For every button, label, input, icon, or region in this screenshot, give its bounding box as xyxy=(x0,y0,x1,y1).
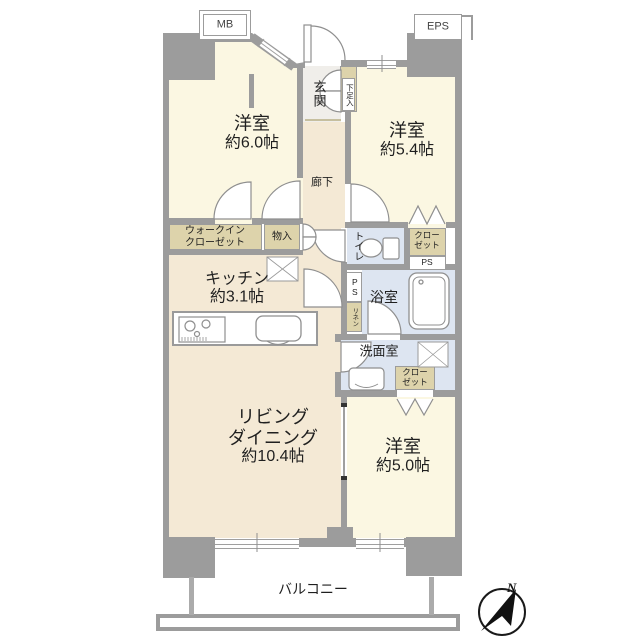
storage-closet-label: 物入 xyxy=(272,231,292,243)
floor-plan: N MB EPS 玄関 下足入 洋室 約6.0帖 洋室 約5.4帖 廊下 ウォー… xyxy=(0,0,640,640)
wall xyxy=(297,122,303,178)
bedroom1-name: 洋室 xyxy=(225,113,279,134)
closet-bedroom2-label: クロー ゼット xyxy=(414,231,440,251)
closet-line2: ゼット xyxy=(414,241,440,251)
living-dining-label: リビング ダイニング 約10.4帖 xyxy=(228,407,318,467)
balcony-label: バルコニー xyxy=(278,581,348,597)
eps-label: EPS xyxy=(427,21,449,34)
toilet-label: トイレ xyxy=(351,231,363,261)
wall xyxy=(297,62,303,122)
wall xyxy=(446,222,455,228)
compass-icon: N xyxy=(479,580,525,635)
living-area: 約10.4帖 xyxy=(228,448,318,466)
compass-north-label: N xyxy=(506,580,517,595)
bedroom2-area: 約5.4帖 xyxy=(380,141,434,159)
wall-right xyxy=(455,67,462,538)
window-living xyxy=(215,539,299,549)
wall-column-top-left xyxy=(163,33,215,80)
corridor-label: 廊下 xyxy=(311,177,333,190)
bath-label: 浴室 xyxy=(370,289,398,305)
pipe-space-label: PS xyxy=(421,258,432,268)
bedroom3-area: 約5.0帖 xyxy=(376,457,430,475)
eps-pipe xyxy=(462,16,472,40)
balcony-side-wall xyxy=(189,577,194,615)
corridor-floor-2 xyxy=(303,228,341,310)
bedroom1-label: 洋室 約6.0帖 xyxy=(225,113,279,152)
walk-in-closet-label: ウォークイン クローゼット xyxy=(185,226,245,249)
balcony-railing xyxy=(156,614,460,631)
bedroom3-label: 洋室 約5.0帖 xyxy=(376,436,430,475)
living-line1: リビング xyxy=(228,407,318,428)
wall-stub xyxy=(249,74,254,108)
balcony-side-wall xyxy=(429,577,434,615)
wic-line1: ウォークイン xyxy=(185,226,245,238)
linen-label: リネン xyxy=(350,307,357,327)
entrance-step xyxy=(305,119,341,121)
pipe-space-label-2: PS xyxy=(349,277,359,297)
wall xyxy=(341,390,397,397)
window-bedroom2 xyxy=(367,60,396,69)
wic-line2: クローゼット xyxy=(185,237,245,249)
wall xyxy=(400,334,455,340)
bedroom2-name: 洋室 xyxy=(380,120,434,141)
wall-pillar-center xyxy=(327,527,353,547)
entrance-door-icon xyxy=(304,25,345,62)
wall xyxy=(433,390,455,397)
kitchen-name: キッチン xyxy=(205,271,269,289)
kitchen-area: 約3.1帖 xyxy=(205,289,269,307)
wall-left xyxy=(163,80,169,538)
bedroom2-label: 洋室 約5.4帖 xyxy=(380,120,434,159)
wall-column-bottom-left xyxy=(163,537,215,578)
closet-line2: ゼット xyxy=(402,378,428,388)
meter-box-label: MB xyxy=(217,19,234,32)
wall-column-bottom-right xyxy=(406,537,462,576)
wall xyxy=(169,250,303,255)
bedroom1-area: 約6.0帖 xyxy=(225,134,279,152)
corridor-floor xyxy=(303,122,345,228)
kitchen-label: キッチン 約3.1帖 xyxy=(205,271,269,308)
wall xyxy=(335,334,341,342)
sliding-door xyxy=(343,407,345,478)
wall xyxy=(341,334,367,340)
kitchen-counter xyxy=(172,311,318,346)
sliding-door-stop xyxy=(341,403,347,407)
window-bedroom3 xyxy=(356,539,404,549)
sliding-door-stop xyxy=(341,476,347,480)
shoe-cabinet-label: 下足入 xyxy=(345,84,354,107)
living-line2: ダイニング xyxy=(228,428,318,449)
closet-bedroom3-label: クロー ゼット xyxy=(402,368,428,388)
bedroom3-name: 洋室 xyxy=(376,436,430,457)
washroom-label: 洗面室 xyxy=(359,345,398,360)
wall xyxy=(345,222,408,228)
entrance-label: 玄関 xyxy=(311,80,326,108)
